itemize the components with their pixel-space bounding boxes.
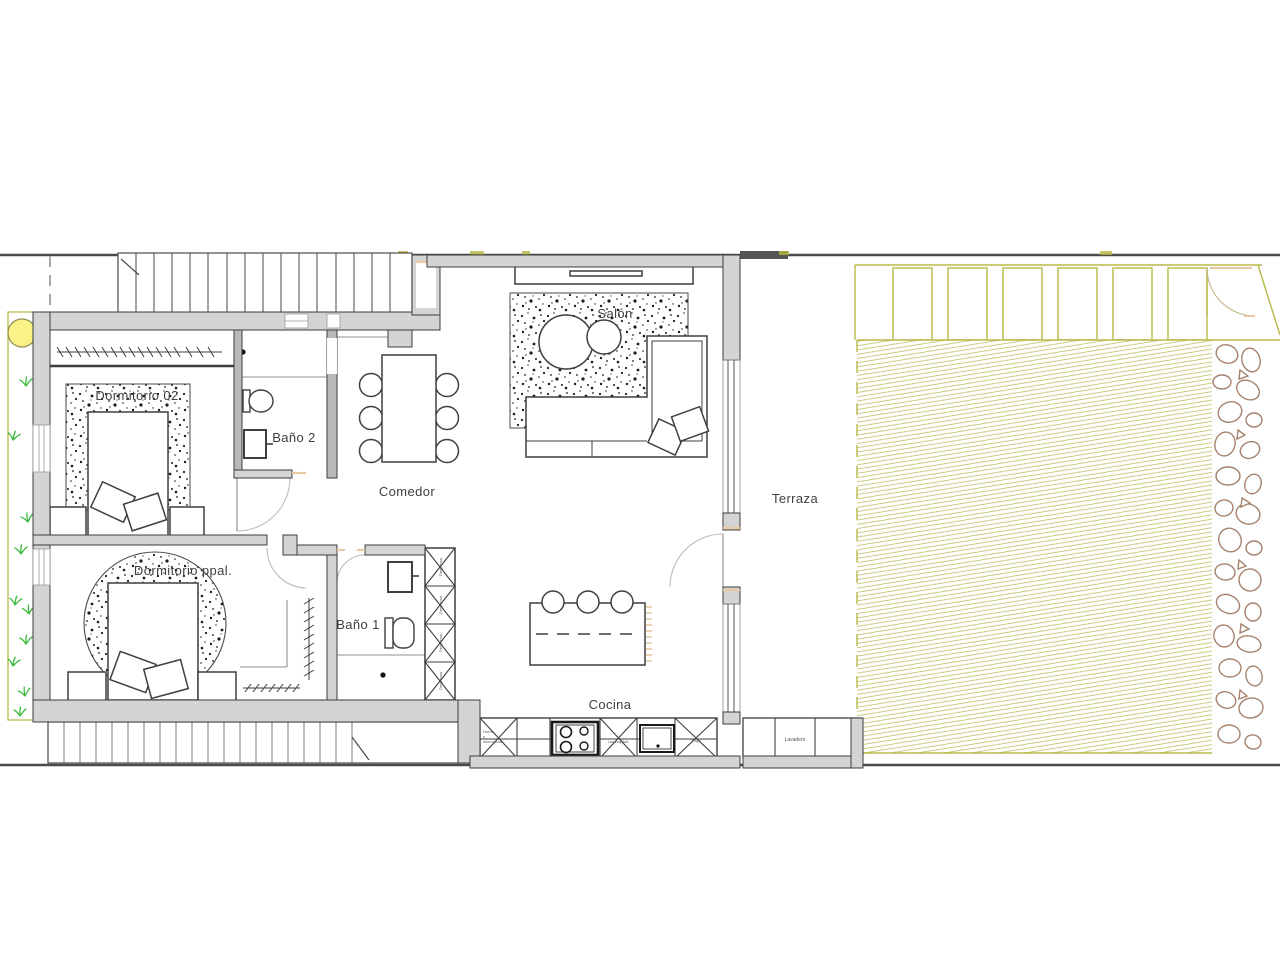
wall-bath1-top: [365, 545, 425, 555]
wall-right-pillar: [723, 255, 740, 360]
wall-bottom-laundry: [743, 756, 863, 768]
stairs-top: [118, 253, 412, 317]
island-towel-rail: [646, 607, 652, 661]
garden-gate-arc: [1207, 268, 1255, 316]
dining-chair: [360, 407, 383, 430]
bedroom2-label: Dormitorio 02: [95, 388, 178, 403]
entry-door-opening: [416, 262, 436, 308]
glazing-frame: [723, 360, 740, 513]
bath2: Baño 2: [242, 377, 327, 458]
bath1-door-arc: [337, 555, 365, 583]
toilet-bowl: [249, 390, 273, 412]
dining-table: [382, 355, 436, 462]
wall-block: [723, 712, 740, 724]
pantry-label: Despensa: [438, 557, 443, 576]
dishwasher-label: Lavavajillas: [608, 739, 629, 744]
floor-plan-drawing: Terraza Dormitorio 02 Baño: [0, 0, 1280, 960]
tv-shelf: [570, 271, 642, 276]
pantry-label: Despensa: [438, 595, 443, 614]
wall-bottom-bedroom-block: [33, 700, 480, 722]
bath1: Baño 1: [330, 562, 425, 678]
nightstand: [68, 672, 106, 702]
fridge-label: Frigo: [691, 738, 701, 743]
wall-master-right: [327, 555, 337, 700]
wall-top-living: [427, 255, 740, 267]
dining-chair: [436, 374, 459, 397]
dining-chair: [436, 407, 459, 430]
window: [33, 425, 50, 472]
nightstand: [170, 507, 204, 537]
bath1-sink: [388, 562, 412, 592]
dining-room: Comedor: [360, 355, 459, 499]
pantry-column: Despensa Despensa Despensa Despensa: [425, 548, 455, 700]
laundry: Lavadero: [743, 718, 861, 758]
bath2-sink: [244, 430, 266, 458]
bath1-label: Baño 1: [336, 617, 380, 632]
coffee-table: [539, 315, 593, 369]
wall-master-door-side: [297, 545, 337, 555]
living-room: Salón: [510, 259, 709, 457]
closet-rail-hangers: [304, 598, 314, 676]
toilet-bowl: [393, 618, 414, 648]
kitchen: Horno y microondas Lavavajillas Frigo Co…: [480, 591, 717, 758]
door-handle-dot: [380, 672, 385, 677]
bedroom2-door-arc: [237, 478, 290, 531]
cooktop: [552, 722, 598, 755]
wall-piece: [283, 535, 297, 555]
stool: [542, 591, 564, 613]
door-swings: [237, 478, 723, 588]
floor-plan-canvas: Terraza Dormitorio 02 Baño: [0, 0, 1280, 960]
dining-chair: [436, 440, 459, 463]
wall-bedroom-divider: [33, 535, 267, 545]
pantry-label: Despensa: [438, 671, 443, 690]
living-label: Salón: [597, 306, 632, 321]
master-label: Dormitorio ppal.: [134, 563, 232, 578]
pergola: [855, 265, 1280, 340]
dining-label: Comedor: [379, 484, 436, 499]
toilet-tank: [385, 618, 393, 648]
grass-icons: [7, 377, 35, 716]
wall-top-bedroom-block: [33, 312, 440, 330]
lawn: [857, 340, 1280, 753]
tree-icon: [8, 319, 36, 347]
pantry-label: Despensa: [438, 633, 443, 652]
window: [33, 549, 50, 585]
nightstand: [198, 672, 236, 702]
wall-bath2-bottom: [234, 470, 292, 478]
coffee-table-small: [587, 320, 621, 354]
wall-bottom-kitchen: [470, 756, 740, 768]
bath2-door-opening: [327, 338, 337, 374]
terrace-label: Terraza: [772, 491, 819, 506]
walkway-bottom: [48, 722, 468, 763]
wall-bath2-left: [234, 330, 242, 478]
wall-left: [33, 312, 50, 722]
rear-garden: Terraza: [772, 265, 1280, 753]
dining-chair: [360, 374, 383, 397]
stool: [611, 591, 633, 613]
rock-border: [1211, 342, 1265, 751]
wall-laundry-side: [851, 718, 863, 768]
glazing-frame: [723, 604, 740, 712]
wall-entry-closet: [388, 330, 412, 347]
window: [327, 314, 340, 328]
oven-label-line: microondas: [483, 739, 504, 744]
nightstand: [50, 507, 86, 537]
oven: [640, 725, 674, 752]
terrace-door-arc: [670, 534, 723, 587]
bedroom2: Dormitorio 02: [50, 347, 246, 542]
bath2-label: Baño 2: [272, 430, 316, 445]
dining-chair: [360, 440, 383, 463]
wall-kitchen-sw: [458, 700, 480, 763]
kitchen-label: Cocina: [589, 697, 632, 712]
stool: [577, 591, 599, 613]
laundry-label: Lavadero: [785, 737, 806, 743]
